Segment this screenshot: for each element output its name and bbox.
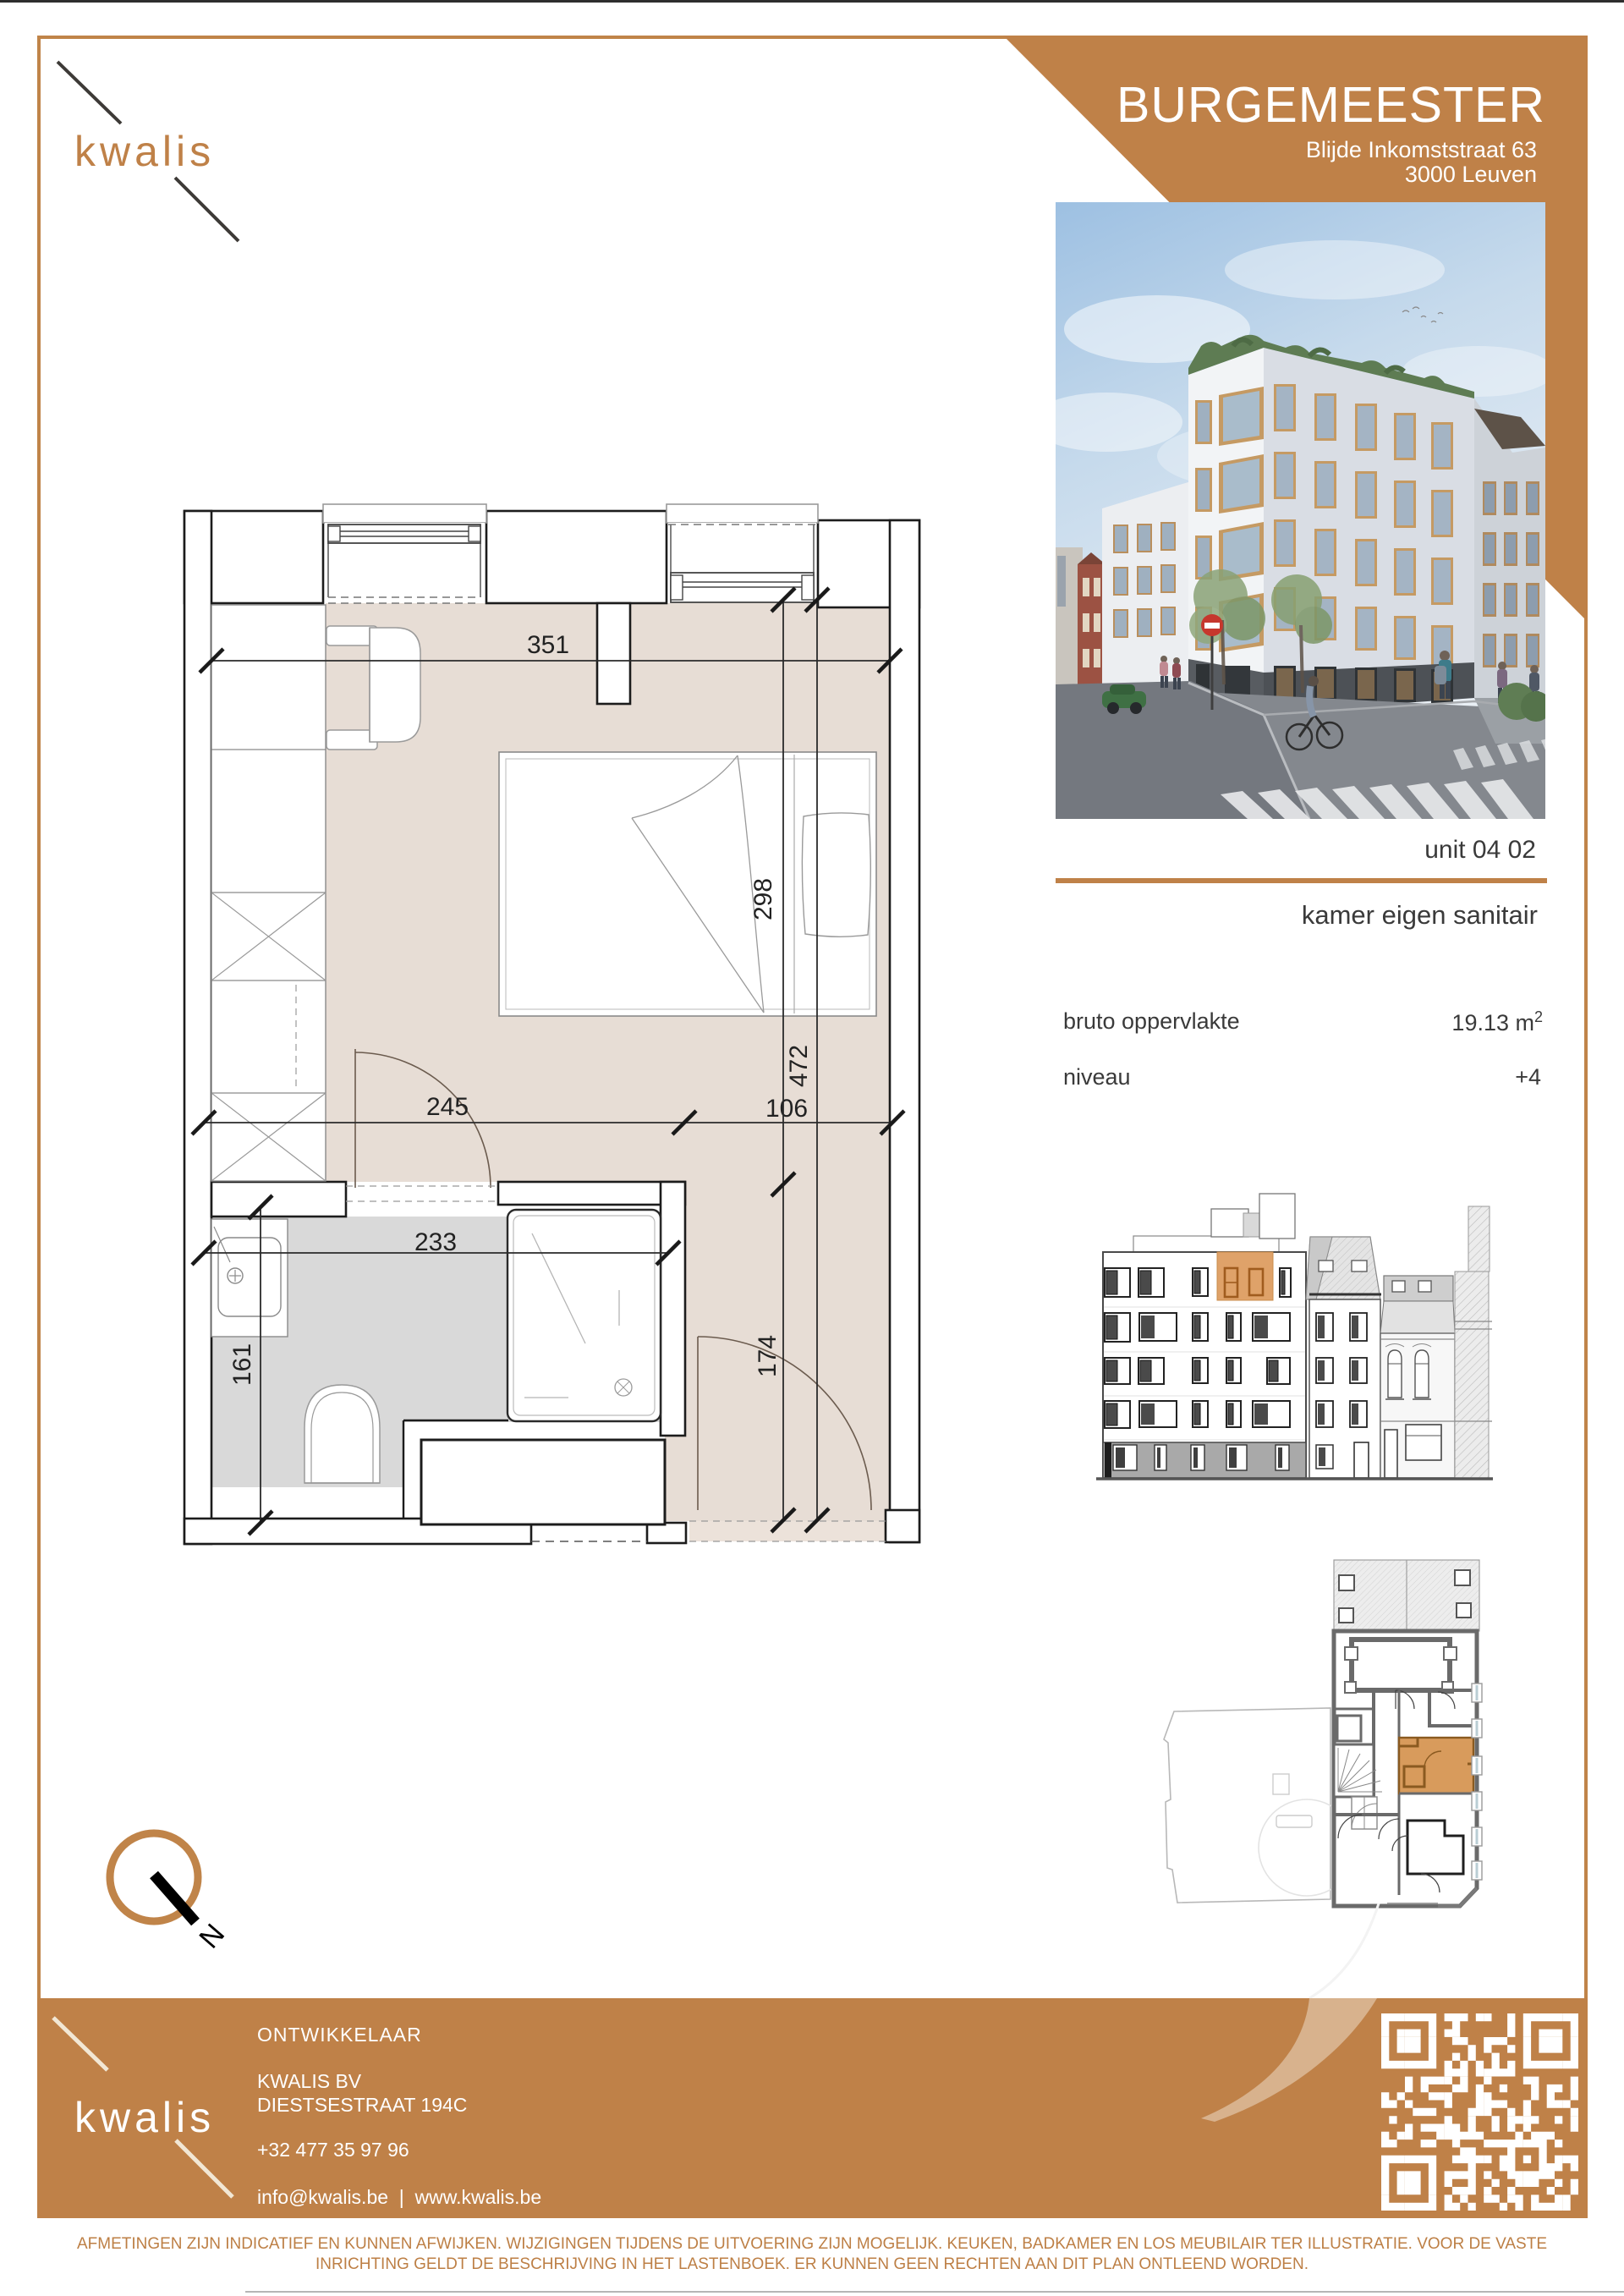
svg-text:N: N (193, 1918, 231, 1954)
svg-text:kwalis: kwalis (74, 2094, 215, 2141)
